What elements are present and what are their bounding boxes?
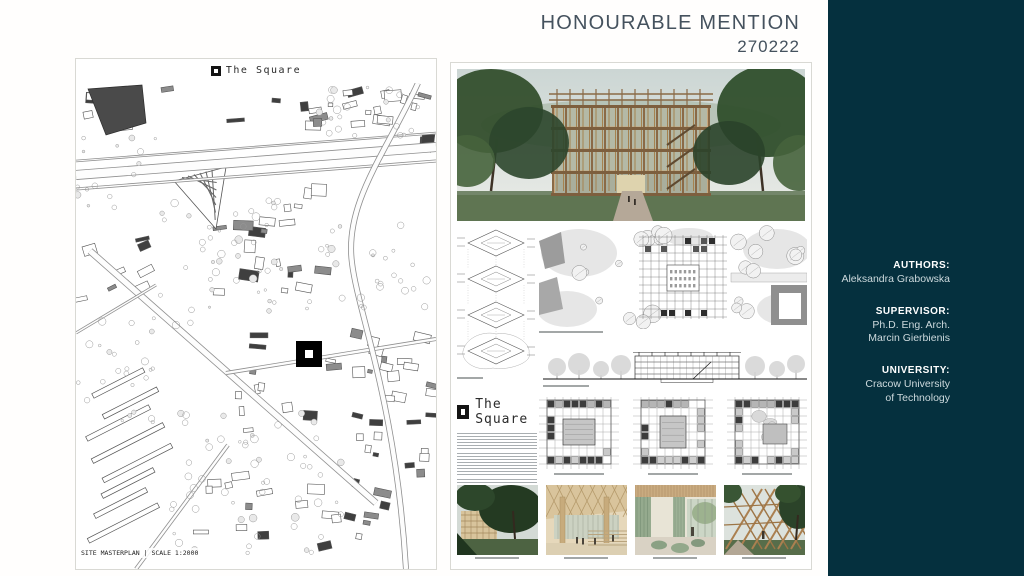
floor-plan-drawing <box>539 397 619 471</box>
render-exterior-trees <box>457 485 538 563</box>
render-image <box>457 485 538 555</box>
exploded-axonometric <box>457 227 535 375</box>
authors-label: AUTHORS: <box>828 258 950 273</box>
university-credit: UNIVERSITY: Cracow University of Technol… <box>828 363 950 405</box>
render-timber-structure <box>724 485 805 563</box>
render-interior-hall <box>546 485 627 563</box>
floor-plan-drawing <box>633 397 713 471</box>
building-section <box>543 351 807 389</box>
competition-slide: HONOURABLE MENTION 270222 The Square SIT… <box>0 0 1024 576</box>
render-image <box>546 485 627 555</box>
floor-plan-drawing <box>727 397 807 471</box>
authors-credit: AUTHORS: Aleksandra Grabowska <box>828 258 950 287</box>
axono-caption-bar <box>457 377 483 379</box>
award-header: HONOURABLE MENTION 270222 <box>541 12 800 57</box>
project-logo-label: The Square <box>475 397 537 427</box>
render-caption-bar <box>475 557 519 559</box>
section-drawing <box>543 351 807 383</box>
supervisor-credit: SUPERVISOR: Ph.D. Eng. Arch. Marcin Gier… <box>828 304 950 346</box>
site-plan-caption-bar <box>539 331 603 333</box>
floor-plan-level2 <box>633 397 713 481</box>
project-logo-large: The Square <box>457 397 537 427</box>
masterplan-board: The Square SITE MASTERPLAN | SCALE 1:200… <box>75 58 437 570</box>
university-value: Cracow University of Technology <box>828 378 950 405</box>
render-caption-bar <box>653 557 697 559</box>
render-image <box>635 485 716 555</box>
site-map <box>76 83 436 569</box>
square-logo-icon <box>457 405 469 419</box>
university-label: UNIVERSITY: <box>828 363 950 378</box>
plan-caption-bar <box>554 473 604 475</box>
site-plan-drawing <box>539 225 807 329</box>
render-image <box>724 485 805 555</box>
project-logo: The Square <box>76 65 436 76</box>
main-building-render <box>457 69 805 221</box>
presentation-board: The Square <box>450 62 812 570</box>
render-thumbnails-row <box>457 485 805 563</box>
render-caption-bar <box>742 557 786 559</box>
supervisor-value: Ph.D. Eng. Arch. Marcin Gierbienis <box>828 319 950 346</box>
description-paragraph <box>457 453 537 475</box>
floor-plans-row <box>539 397 807 481</box>
entry-number: 270222 <box>541 37 800 57</box>
authors-value: Aleksandra Grabowska <box>828 273 950 287</box>
award-title: HONOURABLE MENTION <box>541 12 800 34</box>
square-logo-icon <box>211 66 221 76</box>
render-interior-lounge <box>635 485 716 563</box>
axonometric-diagrams <box>457 227 535 383</box>
masterplan-caption: SITE MASTERPLAN | SCALE 1:2000 <box>79 548 200 558</box>
floor-plan-level1 <box>539 397 619 481</box>
plan-caption-bar <box>742 473 792 475</box>
plan-caption-bar <box>648 473 698 475</box>
credits-sidebar: AUTHORS: Aleksandra Grabowska SUPERVISOR… <box>828 0 1024 576</box>
render-caption-bar <box>564 557 608 559</box>
ground-floor-site-plan <box>539 225 807 335</box>
section-caption-bar <box>543 385 589 387</box>
floor-plan-level3 <box>727 397 807 481</box>
supervisor-label: SUPERVISOR: <box>828 304 950 319</box>
description-paragraph <box>457 433 537 449</box>
project-logo-label: The Square <box>226 65 301 76</box>
